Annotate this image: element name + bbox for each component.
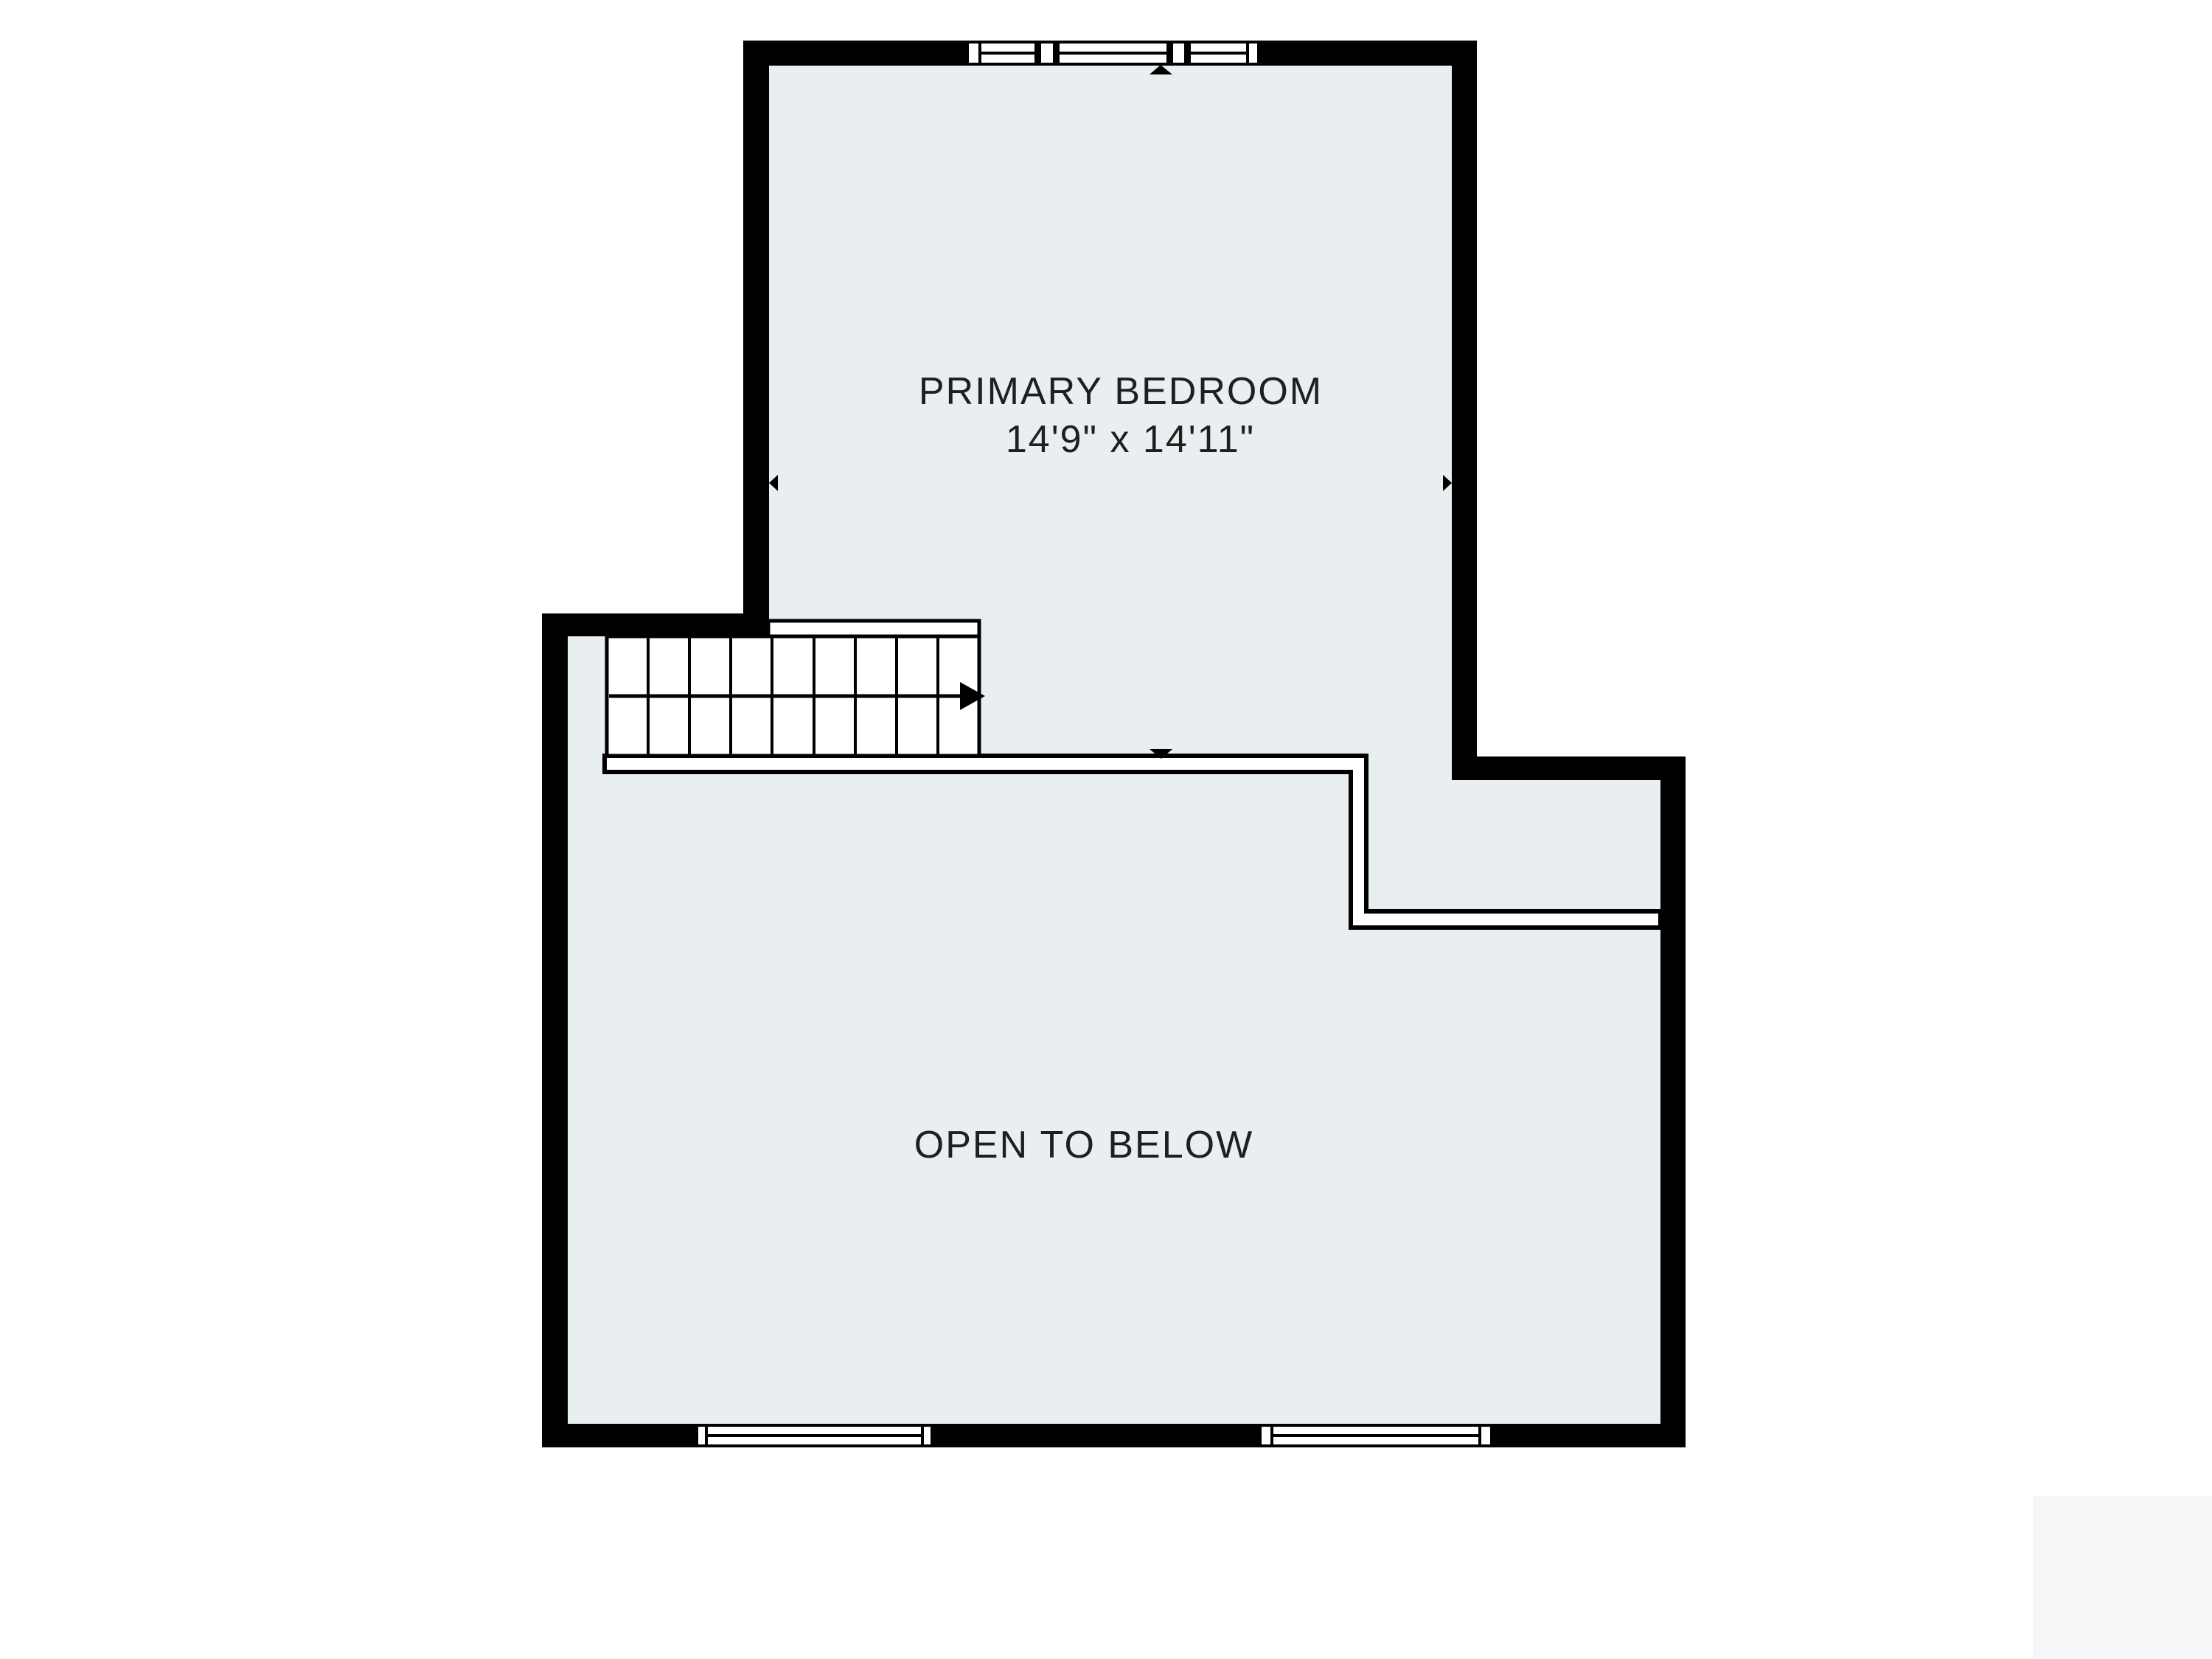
watermark — [2033, 1496, 2212, 1659]
wall-bedroom-left — [743, 41, 769, 636]
stair-landing-strip — [768, 621, 979, 636]
room-dimensions-primary-bedroom: 14'9" x 14'11" — [1006, 418, 1255, 461]
window-top-mullion — [1184, 41, 1191, 66]
window-bottom-left — [697, 1425, 932, 1446]
window-top-mullion — [1166, 41, 1173, 66]
staircase — [607, 621, 985, 756]
window-top-mullion — [1034, 41, 1041, 66]
floorplan-canvas: PRIMARY BEDROOM 14'9" x 14'11" OPEN TO B… — [0, 0, 2212, 1659]
window-top — [967, 41, 1259, 66]
wall-nook-top — [1452, 757, 1686, 780]
window-top-mullion — [1053, 41, 1060, 66]
room-label-open-to-below: OPEN TO BELOW — [914, 1124, 1253, 1166]
floorplan-page: PRIMARY BEDROOM 14'9" x 14'11" OPEN TO B… — [0, 0, 2212, 1659]
wall-right — [1660, 757, 1686, 1447]
wall-left — [542, 613, 568, 1447]
window-bottom-right — [1260, 1425, 1492, 1446]
wall-lower-top — [542, 613, 769, 636]
room-label-primary-bedroom: PRIMARY BEDROOM — [919, 370, 1323, 413]
wall-bedroom-right — [1452, 41, 1477, 780]
